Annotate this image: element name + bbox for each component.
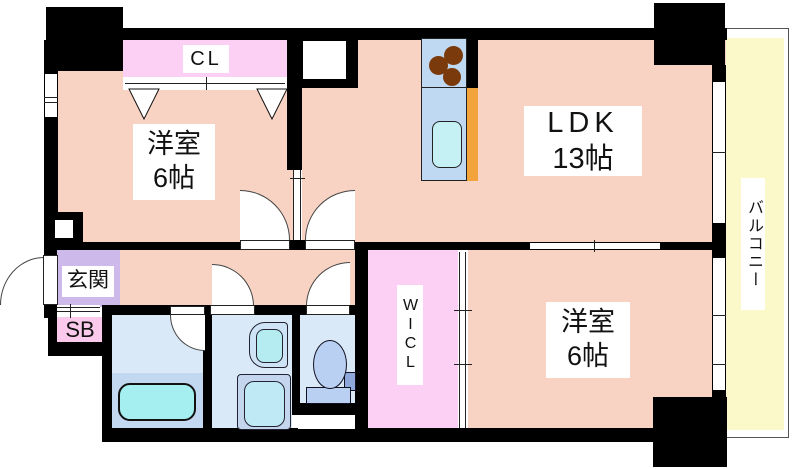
stove-burner [443,68,461,86]
door-leaf-bedroom1 [240,240,290,250]
door-leaf-toilet [306,305,350,315]
washing-machine [244,381,285,427]
label-cl: CL [183,45,229,73]
label-ldk: LDK 13帖 [524,106,642,176]
window-tick [712,364,726,365]
slider-line [465,252,466,428]
wall [292,403,360,415]
bedroom2-name: 洋室 [561,306,615,340]
slider-tick [454,310,472,311]
wall [355,242,368,428]
bathtub [118,383,196,421]
window-tick [712,315,726,316]
label-shoebox: SB [59,318,101,342]
label-genkan: 玄関 [62,266,114,297]
wall [292,315,300,415]
floorplan: CL 洋室 6帖 LDK 13帖 洋室 6帖 玄関 SB WICL バルコニー [0,0,800,469]
partition-line [293,170,294,240]
kitchen-counter-edge [467,88,478,181]
wall-pillar [653,397,727,467]
wall [46,28,727,40]
slider-line [459,252,460,428]
wall [44,242,240,250]
wall [102,428,727,442]
wall [48,342,110,356]
void-niche [302,40,347,80]
door-leaf-ldk [305,240,355,250]
window-tick [44,102,58,103]
pipe-space [55,220,73,238]
window [44,74,58,117]
door-leaf-entrance [43,255,58,305]
door-leaf-bathroom [170,306,205,315]
hanger-icons [125,88,289,121]
exterior-notch [298,415,355,429]
step-line [57,307,100,308]
bedroom1-size: 6帖 [153,162,195,196]
label-wicl: WICL [397,285,423,385]
label-bedroom1: 洋室 6帖 [133,124,215,200]
wall-pillar [654,3,725,65]
wall [44,305,57,318]
toilet-bowl [313,340,347,389]
kitchen-sink [432,121,462,168]
wall [355,242,530,250]
wall [102,305,112,442]
slider-tick [454,364,472,365]
closet-rod [125,83,285,84]
wall [48,318,57,342]
bedroom2-size: 6帖 [567,340,609,374]
wall [290,240,305,250]
kitchen-divider [421,87,467,88]
wall [467,38,478,88]
ldk-size: 13帖 [552,141,613,177]
toilet-base [306,387,351,404]
wall [287,28,302,170]
slider-tick [594,240,595,252]
window-tick [44,97,58,98]
room-ldk [302,38,726,242]
step-line [57,311,100,312]
window-bedroom2 [712,258,726,390]
door-leaf-washroom [210,305,255,315]
window-tick [712,152,726,153]
wall [660,242,712,250]
sliding-door-bedroom2 [530,242,660,250]
washbasin [256,329,283,363]
label-bedroom2: 洋室 6帖 [546,302,630,378]
label-balcony: バルコニー [741,178,765,310]
wall [287,80,358,88]
partition-tick [290,178,305,179]
bedroom1-name: 洋室 [147,128,201,162]
partition-line [300,170,301,240]
ldk-name: LDK [547,105,618,141]
door-arc-entrance [0,257,44,305]
